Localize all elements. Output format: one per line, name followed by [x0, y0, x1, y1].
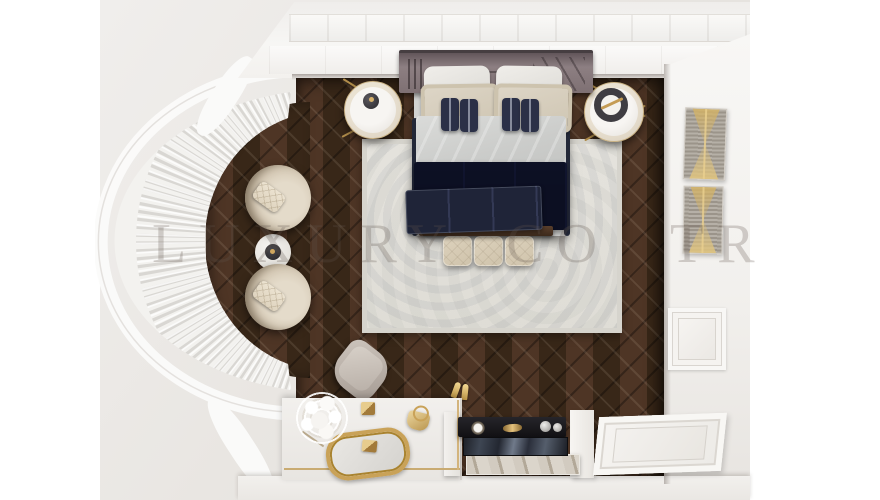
tv-screen [463, 437, 568, 456]
right-wall-wainscot-panel [668, 308, 726, 370]
gold-decor-box-2 [361, 439, 377, 453]
door-panel-inset [612, 425, 708, 462]
bedroom-render: LUXURYCOTR [0, 0, 880, 500]
console-round-decor-1 [540, 421, 551, 432]
navy-accent-pillow [521, 99, 539, 132]
gold-decor-box-1 [361, 402, 375, 415]
white-door-panel [593, 413, 727, 476]
armchair-bottom-pillow [251, 279, 287, 313]
armchair-top-pillow [251, 180, 287, 214]
nightstand-left [344, 81, 402, 139]
watermark-segment-2: CO [506, 213, 610, 275]
console-clock [471, 421, 485, 435]
watermark-text: LUXURYCOTR [152, 212, 768, 276]
watermark-segment-1: LUXURY [152, 213, 460, 275]
navy-accent-pillow [502, 98, 520, 131]
marble-bench [466, 454, 580, 475]
navy-accent-pillow [460, 99, 478, 132]
wainscot-panel-inset [678, 318, 716, 360]
navy-accent-pillow [441, 98, 459, 131]
watermark-segment-3: TR [670, 213, 768, 275]
nightstand-left-gold-decor [369, 97, 374, 102]
flower-bouquet [296, 392, 348, 444]
top-wall-cornice [289, 14, 750, 42]
console-round-decor-2 [553, 423, 562, 432]
wall-art-frame-1 [683, 107, 727, 180]
